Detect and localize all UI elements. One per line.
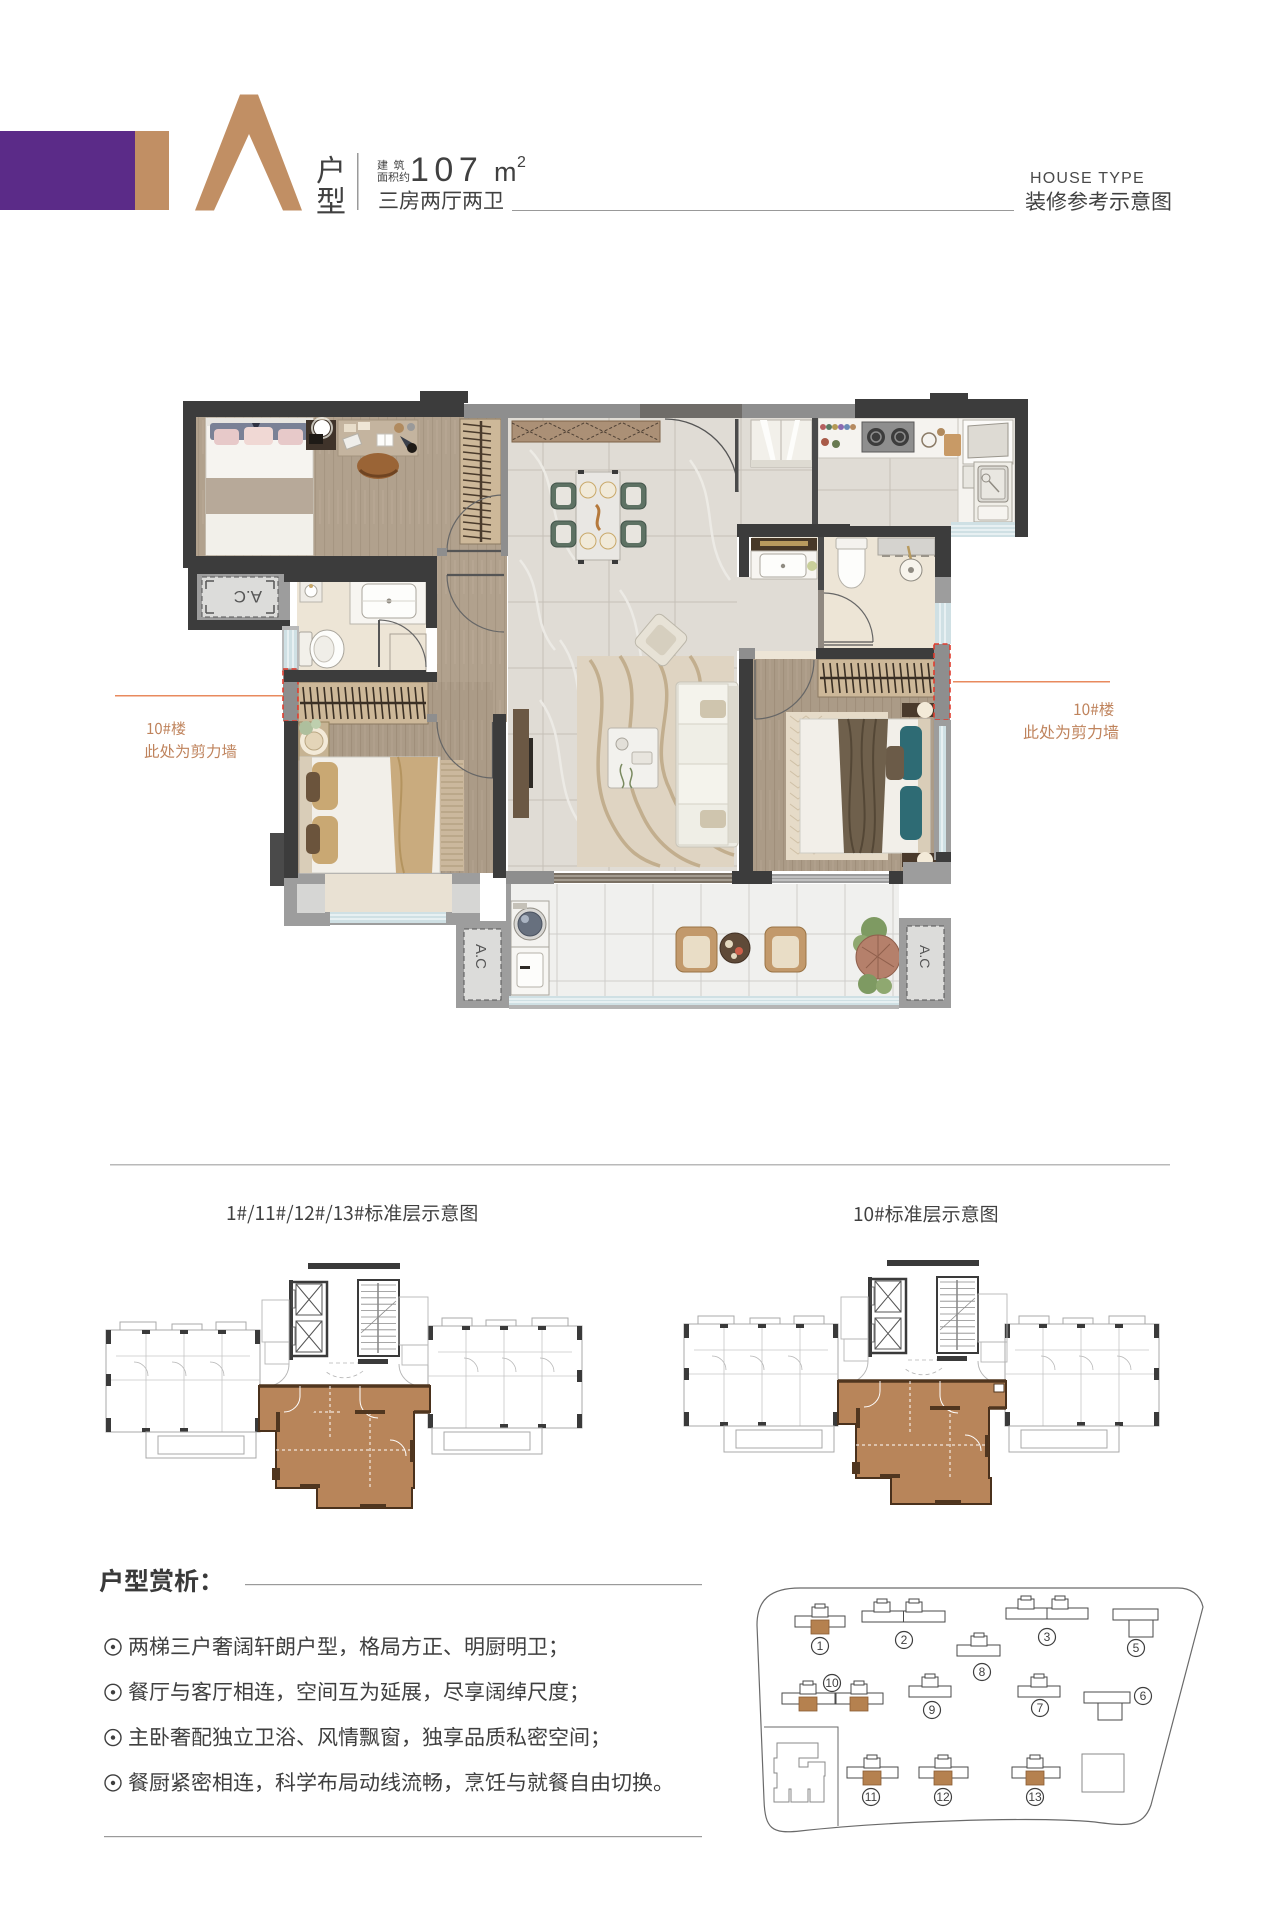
svg-text:10: 10: [825, 1676, 839, 1690]
svg-text:9: 9: [929, 1703, 936, 1717]
svg-text:A.C: A.C: [234, 587, 262, 606]
svg-text:1: 1: [817, 1639, 824, 1653]
svg-text:7: 7: [1037, 1701, 1044, 1715]
svg-text:6: 6: [1140, 1689, 1147, 1703]
svg-text:HOUSE TYPE: HOUSE TYPE: [1030, 170, 1145, 187]
svg-text:2: 2: [901, 1633, 908, 1647]
svg-text:5: 5: [1133, 1641, 1140, 1655]
svg-text:8: 8: [979, 1665, 986, 1679]
svg-text:107: 107: [410, 151, 483, 189]
svg-text:12: 12: [936, 1790, 950, 1804]
svg-text:A.C: A.C: [472, 944, 489, 969]
svg-text:13: 13: [1028, 1790, 1042, 1804]
svg-text:m: m: [494, 157, 517, 187]
svg-text:3: 3: [1044, 1630, 1051, 1644]
svg-text:A.C: A.C: [917, 945, 933, 968]
svg-text:11: 11: [865, 1790, 878, 1804]
svg-text:2: 2: [517, 154, 526, 171]
